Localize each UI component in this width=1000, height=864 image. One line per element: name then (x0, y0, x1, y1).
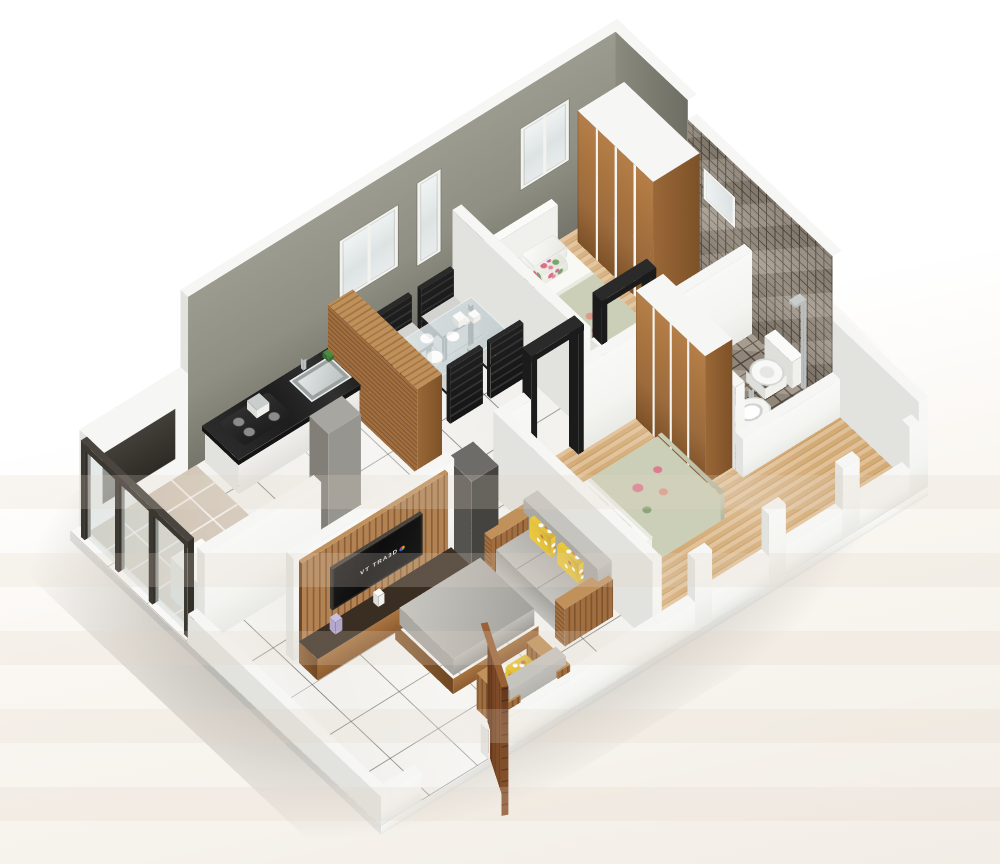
window-dining-2 (417, 169, 440, 266)
tv-wall-west (286, 551, 294, 661)
window-bedroom-1 (521, 99, 569, 190)
door-frame-2-right-west (569, 320, 578, 455)
window-bathroom (704, 168, 735, 229)
wall-front-left-south (381, 791, 390, 826)
floorplan-render: VT TRA3D (0, 0, 1000, 864)
window-dining-1 (340, 205, 398, 302)
window-post-3-south (843, 458, 860, 539)
shower-pipe-south (803, 298, 806, 390)
bed-2-drape-south (721, 492, 725, 521)
wardrobe-2-south (705, 339, 732, 484)
door-frame-2-right-south (578, 326, 583, 455)
window-post-1-south (695, 550, 712, 631)
entrance-door-west (502, 686, 509, 816)
